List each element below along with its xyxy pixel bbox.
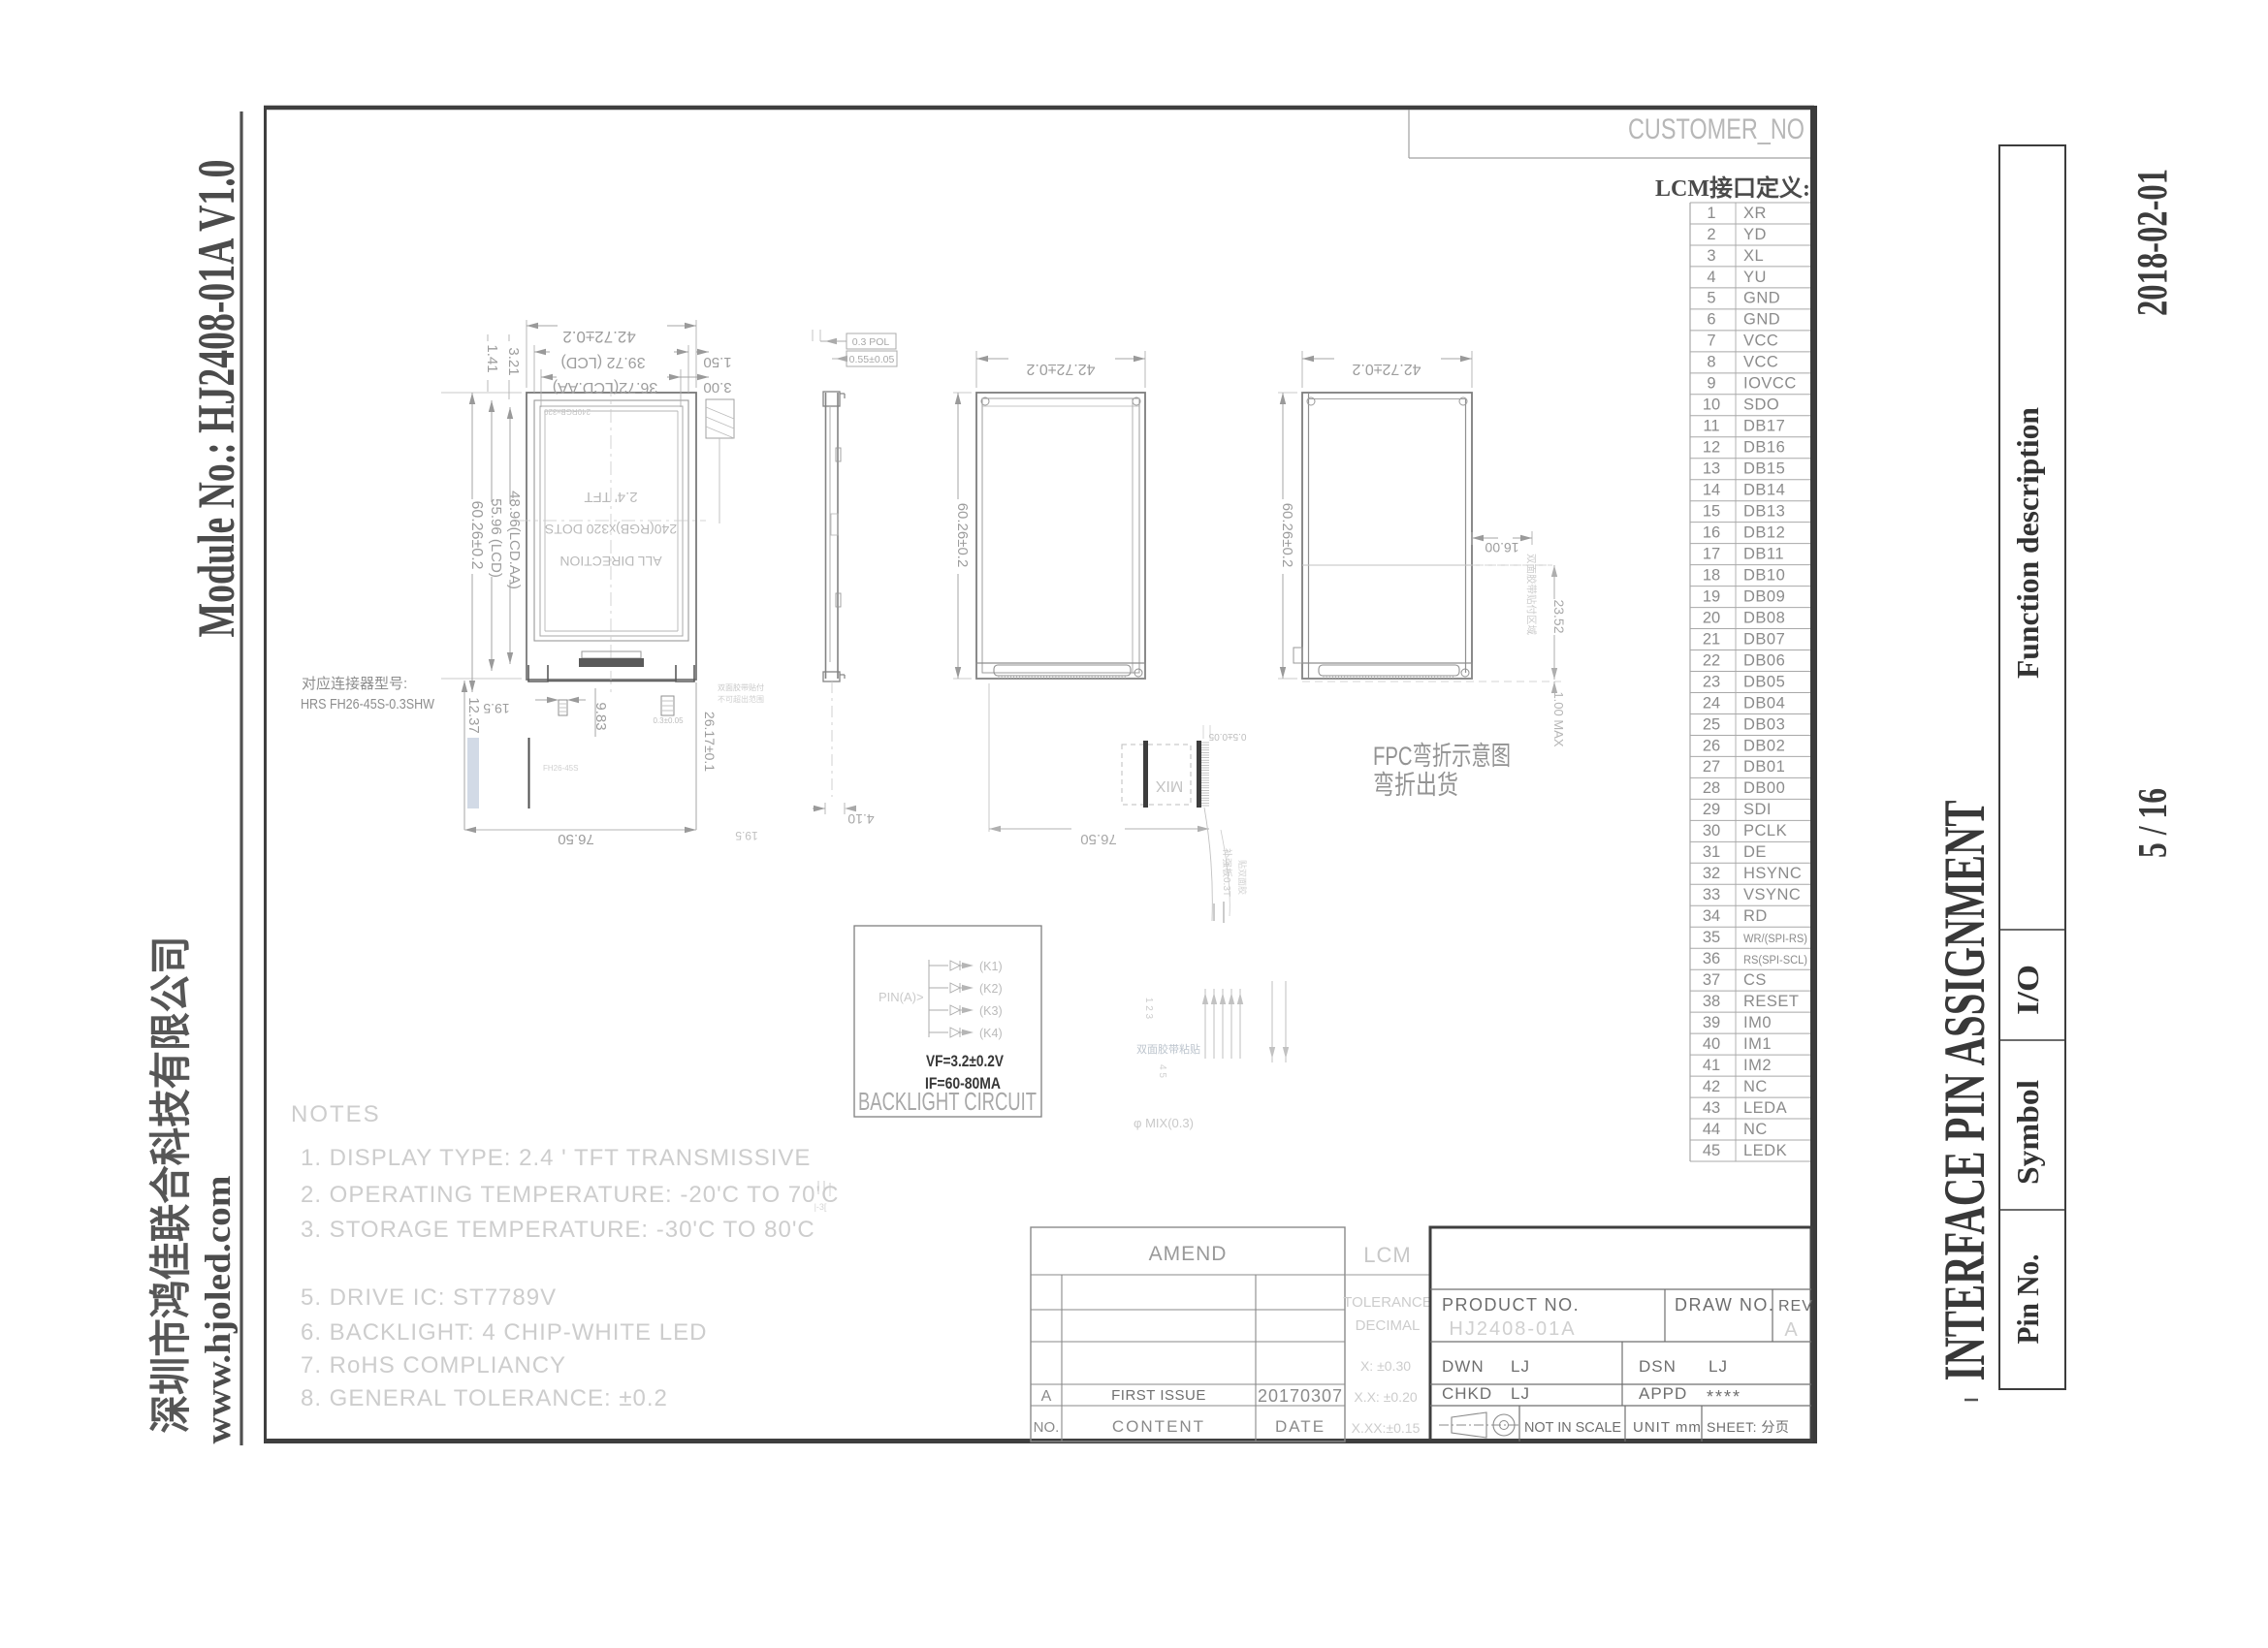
svg-text:0.5±0.05: 0.5±0.05 xyxy=(1208,731,1246,742)
svg-text:AMEND: AMEND xyxy=(1149,1243,1228,1265)
svg-text:PRODUCT NO.: PRODUCT NO. xyxy=(1442,1295,1580,1315)
svg-text:15: 15 xyxy=(1703,503,1720,521)
svg-text:35: 35 xyxy=(1703,929,1720,946)
svg-text:DB04: DB04 xyxy=(1743,694,1785,712)
svg-text:26: 26 xyxy=(1703,737,1720,754)
svg-text:MIX: MIX xyxy=(1155,777,1183,794)
svg-text:FH26-45S: FH26-45S xyxy=(543,764,578,773)
svg-text:LCM: LCM xyxy=(1363,1243,1411,1267)
svg-text:HJ2408-01A: HJ2408-01A xyxy=(1449,1318,1576,1340)
svg-text:DB17: DB17 xyxy=(1743,418,1785,435)
svg-text:6: 6 xyxy=(1707,311,1715,329)
svg-text:1.50: 1.50 xyxy=(703,354,731,370)
svg-text:INTERFACE PIN ASSIGNMENT: INTERFACE PIN ASSIGNMENT xyxy=(1933,801,1996,1381)
svg-text:DB01: DB01 xyxy=(1743,758,1785,776)
svg-text:IOVCC: IOVCC xyxy=(1743,375,1797,393)
svg-text:LEDK: LEDK xyxy=(1743,1142,1787,1159)
svg-text:REV: REV xyxy=(1778,1298,1813,1315)
svg-text:DB03: DB03 xyxy=(1743,715,1785,733)
svg-text:LJ: LJ xyxy=(1511,1384,1530,1403)
svg-text:DB00: DB00 xyxy=(1743,779,1785,797)
svg-text:CUSTOMER_NO: CUSTOMER_NO xyxy=(1628,113,1805,145)
svg-text:27: 27 xyxy=(1703,758,1720,776)
svg-text:39: 39 xyxy=(1703,1014,1720,1031)
svg-text:10: 10 xyxy=(1703,396,1720,414)
svg-text:SHEET: 分页: SHEET: 分页 xyxy=(1707,1419,1789,1435)
svg-text:DB12: DB12 xyxy=(1743,523,1785,541)
svg-text:1.00 MAX: 1.00 MAX xyxy=(1551,691,1566,746)
svg-text:34: 34 xyxy=(1703,907,1720,925)
svg-text:CONTENT: CONTENT xyxy=(1112,1417,1205,1436)
svg-text:19.5: 19.5 xyxy=(483,701,509,716)
svg-text:42.72±0.2: 42.72±0.2 xyxy=(1352,361,1421,377)
svg-text:16: 16 xyxy=(1703,523,1720,541)
svg-text:60.26±0.2: 60.26±0.2 xyxy=(468,500,485,569)
svg-text:RESET: RESET xyxy=(1743,993,1800,1010)
svg-text:HRS FH26-45S-0.3SHW: HRS FH26-45S-0.3SHW xyxy=(301,696,435,713)
svg-text:X: ±0.30: X: ±0.30 xyxy=(1360,1358,1411,1374)
svg-text:双面胶带粘贴: 双面胶带粘贴 xyxy=(1136,1042,1200,1056)
svg-text:XR: XR xyxy=(1743,205,1767,222)
svg-text:Module No.: HJ2408-01A V1.0: Module No.: HJ2408-01A V1.0 xyxy=(187,160,245,638)
svg-text:18: 18 xyxy=(1703,566,1720,584)
svg-text:3: 3 xyxy=(1707,247,1715,265)
svg-text:φ MIX(0.3): φ MIX(0.3) xyxy=(1134,1116,1194,1130)
svg-text:DE: DE xyxy=(1743,843,1767,861)
svg-text:1: 1 xyxy=(1707,205,1715,222)
svg-text:CS: CS xyxy=(1743,971,1767,989)
svg-text:4 5: 4 5 xyxy=(1157,1064,1167,1078)
svg-text:DB09: DB09 xyxy=(1743,587,1785,605)
svg-text:LCM接口定义:: LCM接口定义: xyxy=(1655,174,1810,202)
svg-text:Function description: Function description xyxy=(2010,407,2045,679)
svg-text:5: 5 xyxy=(1707,290,1715,307)
svg-text:IM2: IM2 xyxy=(1743,1057,1772,1074)
svg-text:0.55±0.05: 0.55±0.05 xyxy=(849,354,895,365)
svg-text:3. STORAGE TEMPERATURE:: 3. STORAGE TEMPERATURE: -30'C TO 80'C xyxy=(301,1217,815,1243)
svg-text:24: 24 xyxy=(1703,694,1720,712)
svg-text:1 2 3: 1 2 3 xyxy=(1143,998,1154,1020)
svg-text:55.96 (LCD): 55.96 (LCD) xyxy=(488,498,504,578)
svg-text:VCC: VCC xyxy=(1743,333,1778,350)
svg-text:DRAW NO.: DRAW NO. xyxy=(1675,1295,1774,1315)
svg-text:20: 20 xyxy=(1703,609,1720,626)
svg-text:7: 7 xyxy=(1707,333,1715,350)
svg-text:深圳市鸿佳联合科技有限公司: 深圳市鸿佳联合科技有限公司 xyxy=(148,936,195,1434)
svg-text:DB02: DB02 xyxy=(1743,737,1785,754)
svg-text:32: 32 xyxy=(1703,865,1720,882)
svg-text:76.50: 76.50 xyxy=(558,831,594,847)
svg-text:DB14: DB14 xyxy=(1743,482,1785,499)
svg-text:7. RoHS COMPLIANCY: 7. RoHS COMPLIANCY xyxy=(301,1352,566,1379)
svg-text:48.96(LCD.AA): 48.96(LCD.AA) xyxy=(506,491,523,589)
svg-text:DB13: DB13 xyxy=(1743,503,1785,521)
svg-text:UNIT mm: UNIT mm xyxy=(1633,1419,1702,1436)
svg-text:X.XX:±0.15: X.XX:±0.15 xyxy=(1352,1420,1421,1436)
svg-text:(K1): (K1) xyxy=(979,960,1003,973)
svg-text:HSYNC: HSYNC xyxy=(1743,865,1802,882)
svg-text:ALL DIRECTION: ALL DIRECTION xyxy=(559,554,661,569)
svg-text:DB05: DB05 xyxy=(1743,673,1785,690)
svg-text:1. DISPLAY TYPE: 2.4 ' TFT TRA: 1. DISPLAY TYPE: 2.4 ' TFT TRANSMISSIVE xyxy=(301,1145,811,1171)
svg-text:28: 28 xyxy=(1703,779,1720,797)
svg-text:8: 8 xyxy=(1707,354,1715,371)
svg-text:14: 14 xyxy=(1703,482,1720,499)
svg-text:DECIMAL: DECIMAL xyxy=(1356,1317,1421,1334)
svg-text:60.26±0.2: 60.26±0.2 xyxy=(1279,503,1295,568)
svg-text:A: A xyxy=(1784,1319,1798,1341)
svg-text:40: 40 xyxy=(1703,1035,1720,1053)
svg-text:11: 11 xyxy=(1703,418,1719,435)
svg-text:不可超出范围: 不可超出范围 xyxy=(718,694,764,704)
svg-text:X.X: ±0.20: X.X: ±0.20 xyxy=(1354,1389,1417,1405)
svg-text:26.17±0.1: 26.17±0.1 xyxy=(702,712,718,772)
svg-text:12.37: 12.37 xyxy=(465,697,482,734)
svg-text:42.72±0.2: 42.72±0.2 xyxy=(562,328,636,346)
svg-text:TOLERANCE: TOLERANCE xyxy=(1343,1294,1431,1311)
svg-text:23.52: 23.52 xyxy=(1551,599,1567,633)
svg-text:0.3 POL: 0.3 POL xyxy=(852,336,890,348)
svg-text:5 / 16: 5 / 16 xyxy=(2131,788,2176,858)
svg-text:44: 44 xyxy=(1703,1121,1720,1138)
svg-text:240(RGB)x320 DOTS: 240(RGB)x320 DOTS xyxy=(545,522,677,537)
svg-text:12: 12 xyxy=(1703,439,1720,457)
svg-text:APPD: APPD xyxy=(1639,1384,1687,1403)
svg-text:2. OPERATING TEMPERATURE: -: 2. OPERATING TEMPERATURE: -20'C TO 70'C xyxy=(301,1182,839,1208)
svg-text:WR/(SPI-RS): WR/(SPI-RS) xyxy=(1743,934,1807,945)
svg-text:42.72±0.2: 42.72±0.2 xyxy=(1026,361,1095,377)
svg-text:FIRST ISSUE: FIRST ISSUE xyxy=(1111,1387,1206,1404)
svg-text:19.5: 19.5 xyxy=(735,829,758,842)
svg-text:双面胶带贴付区域: 双面胶带贴付区域 xyxy=(1525,554,1538,635)
svg-text:RD: RD xyxy=(1743,907,1768,925)
svg-text:PIN(A)>: PIN(A)> xyxy=(878,990,924,1004)
svg-text:LEDA: LEDA xyxy=(1743,1099,1787,1117)
svg-text:45: 45 xyxy=(1703,1142,1720,1159)
svg-text:DATE: DATE xyxy=(1275,1417,1326,1436)
svg-text:NO.: NO. xyxy=(1034,1419,1060,1436)
svg-text:43: 43 xyxy=(1703,1099,1720,1117)
svg-text:1.41: 1.41 xyxy=(484,344,500,372)
svg-text:0.3±0.05: 0.3±0.05 xyxy=(653,716,684,725)
svg-text:DB11: DB11 xyxy=(1743,545,1784,562)
svg-text:VSYNC: VSYNC xyxy=(1743,886,1801,903)
svg-text:贴双面胶: 贴双面胶 xyxy=(1237,860,1248,895)
svg-text:22: 22 xyxy=(1703,651,1720,669)
svg-text:29: 29 xyxy=(1703,801,1720,818)
svg-text:PCLK: PCLK xyxy=(1743,822,1787,840)
svg-text:3.21: 3.21 xyxy=(505,347,522,375)
svg-text:IM0: IM0 xyxy=(1743,1014,1772,1031)
svg-text:5. DRIVE IC: ST7789V: 5. DRIVE IC: ST7789V xyxy=(301,1284,557,1311)
svg-text:IM1: IM1 xyxy=(1743,1035,1772,1053)
svg-text:Symbol: Symbol xyxy=(2010,1080,2045,1185)
svg-text:I/O: I/O xyxy=(2010,965,2045,1015)
svg-text:DB15: DB15 xyxy=(1743,460,1785,478)
svg-text:FPC弯折示意图: FPC弯折示意图 xyxy=(1373,742,1511,771)
svg-text:****: **** xyxy=(1707,1387,1741,1407)
svg-text:CHKD: CHKD xyxy=(1442,1384,1492,1403)
svg-text:SDI: SDI xyxy=(1743,801,1772,818)
svg-text:NC: NC xyxy=(1743,1121,1768,1138)
svg-text:20170307: 20170307 xyxy=(1258,1386,1343,1406)
svg-text:23: 23 xyxy=(1703,673,1720,690)
svg-text:76.50: 76.50 xyxy=(1080,831,1117,847)
svg-text:19: 19 xyxy=(1703,587,1720,605)
svg-text:25: 25 xyxy=(1703,715,1720,733)
svg-text:RS(SPI-SCL): RS(SPI-SCL) xyxy=(1743,955,1807,967)
svg-text:LJ: LJ xyxy=(1511,1357,1530,1376)
svg-text:补强板0.3T: 补强板0.3T xyxy=(1221,848,1233,897)
svg-text:SDO: SDO xyxy=(1743,396,1779,414)
svg-text:Pin No.: Pin No. xyxy=(2010,1254,2045,1345)
svg-text:www.hjoled.com: www.hjoled.com xyxy=(199,1175,239,1443)
svg-text:240RGBx320: 240RGBx320 xyxy=(543,407,591,416)
svg-text:3.00: 3.00 xyxy=(703,379,731,396)
svg-text:30: 30 xyxy=(1703,822,1720,840)
svg-text:XL: XL xyxy=(1743,247,1764,265)
svg-text:弯折出货: 弯折出货 xyxy=(1373,771,1458,800)
svg-text:DB16: DB16 xyxy=(1743,439,1785,457)
svg-text:VF=3.2±0.2V: VF=3.2±0.2V xyxy=(926,1052,1005,1070)
svg-text:33: 33 xyxy=(1703,886,1720,903)
svg-text:对应连接器型号:: 对应连接器型号: xyxy=(302,675,407,692)
svg-text:4.10: 4.10 xyxy=(847,811,874,827)
svg-text:DB08: DB08 xyxy=(1743,609,1785,626)
svg-text:16.00: 16.00 xyxy=(1485,540,1518,555)
svg-text:(K4): (K4) xyxy=(979,1027,1003,1040)
svg-text:42: 42 xyxy=(1703,1078,1720,1095)
svg-text:17: 17 xyxy=(1703,545,1720,562)
svg-text:(K3): (K3) xyxy=(979,1004,1003,1018)
svg-text:9.83: 9.83 xyxy=(592,702,609,730)
svg-text:60.26±0.2: 60.26±0.2 xyxy=(954,503,971,568)
svg-text:BACKLIGHT CIRCUIT: BACKLIGHT CIRCUIT xyxy=(858,1087,1037,1116)
svg-text:DB06: DB06 xyxy=(1743,651,1785,669)
svg-text:36: 36 xyxy=(1703,950,1720,967)
svg-text:37: 37 xyxy=(1703,971,1720,989)
svg-text:DB07: DB07 xyxy=(1743,630,1785,648)
svg-text:(K2): (K2) xyxy=(979,982,1003,996)
svg-text:2018-02-01: 2018-02-01 xyxy=(2128,169,2176,316)
svg-text:A: A xyxy=(1041,1388,1052,1405)
svg-text:YD: YD xyxy=(1743,226,1767,243)
svg-text:13: 13 xyxy=(1703,460,1720,478)
svg-text:VCC: VCC xyxy=(1743,354,1778,371)
svg-text:41: 41 xyxy=(1703,1057,1720,1074)
svg-text:双面胶带贴付: 双面胶带贴付 xyxy=(718,682,764,692)
svg-text:31: 31 xyxy=(1703,843,1720,861)
svg-text:4: 4 xyxy=(1707,269,1715,286)
svg-text:GND: GND xyxy=(1743,311,1780,329)
svg-text:YU: YU xyxy=(1743,269,1767,286)
svg-text:6. BACKLIGHT: 4 CHIP-WHITE LED: 6. BACKLIGHT: 4 CHIP-WHITE LED xyxy=(301,1319,707,1346)
svg-text:2: 2 xyxy=(1707,226,1715,243)
svg-text:8. GENERAL TOLERANCE: ±0.2: 8. GENERAL TOLERANCE: ±0.2 xyxy=(301,1385,668,1411)
svg-text:NOTES: NOTES xyxy=(291,1101,381,1127)
svg-text:DSN: DSN xyxy=(1639,1357,1677,1376)
svg-text:2.4' TFT: 2.4' TFT xyxy=(584,489,637,505)
svg-text:9: 9 xyxy=(1707,375,1715,393)
svg-text:DB10: DB10 xyxy=(1743,566,1785,584)
svg-text:39.72 (LCD): 39.72 (LCD) xyxy=(560,354,645,370)
svg-text:LJ: LJ xyxy=(1709,1357,1728,1376)
svg-text:NC: NC xyxy=(1743,1078,1768,1095)
svg-text:38: 38 xyxy=(1703,993,1720,1010)
svg-text:NOT IN SCALE: NOT IN SCALE xyxy=(1524,1419,1621,1436)
svg-text:21: 21 xyxy=(1703,630,1720,648)
svg-text:DWN: DWN xyxy=(1442,1357,1485,1376)
svg-text:36.72(LCD.AA): 36.72(LCD.AA) xyxy=(553,379,658,396)
svg-text:GND: GND xyxy=(1743,290,1780,307)
